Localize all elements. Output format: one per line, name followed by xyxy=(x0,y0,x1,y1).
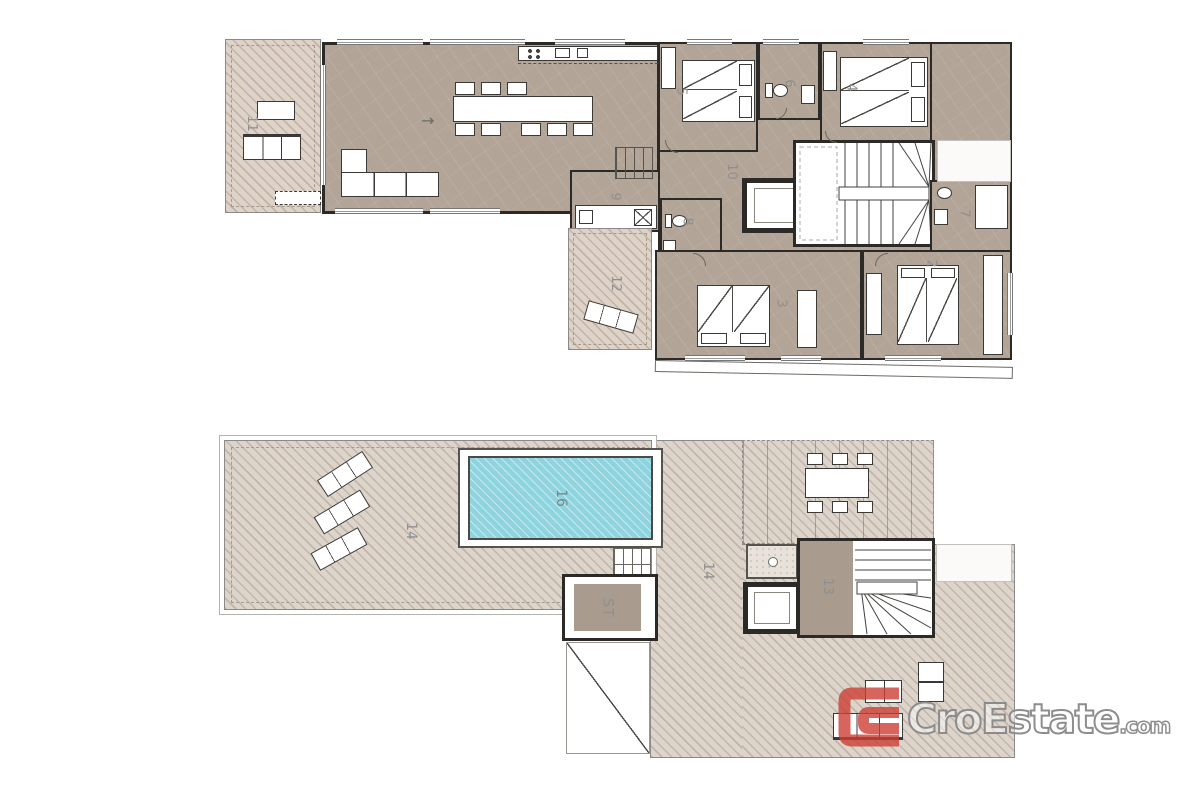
outdoor-dining-table xyxy=(805,468,869,498)
stair-room-drawing xyxy=(797,538,935,638)
floorplan-page: { "watermark": { "brand": "CroEstate", "… xyxy=(0,0,1200,800)
croestate-logo-svg xyxy=(837,686,903,748)
room-label-14-right: 14 xyxy=(701,562,715,580)
lower-roof-gable xyxy=(566,642,650,754)
pillow xyxy=(739,96,752,118)
hall-steps xyxy=(615,147,653,179)
room-label-13: 13 xyxy=(821,578,834,595)
kitchen-appliance-icon xyxy=(577,48,588,58)
window xyxy=(863,39,909,45)
terrace-11 xyxy=(225,39,321,213)
pillow xyxy=(911,97,925,122)
room-label-16: 16 xyxy=(552,489,568,507)
dining-chair xyxy=(455,123,475,136)
shower-room7 xyxy=(975,185,1008,229)
window xyxy=(430,39,525,45)
bar-stool xyxy=(521,123,541,136)
pillow xyxy=(911,62,925,87)
croestate-tld: .com xyxy=(1119,716,1170,737)
storage-st: ST xyxy=(562,574,658,641)
window xyxy=(781,355,821,361)
croestate-wordmark: CroEstate xyxy=(907,699,1119,740)
stairwell-drawing xyxy=(793,140,935,247)
wardrobe-room5 xyxy=(661,47,676,89)
sink-room6 xyxy=(801,85,815,104)
elevator-shaft-roof xyxy=(743,582,801,634)
kitchen-sink-icon xyxy=(555,48,570,58)
roof-terrace-right xyxy=(650,440,742,758)
room-label-2: 2 xyxy=(925,259,938,267)
outdoor-chair xyxy=(807,501,823,513)
pillow xyxy=(931,268,955,278)
bar-stool xyxy=(573,123,593,136)
bed-half xyxy=(734,286,769,332)
outdoor-chair xyxy=(807,453,823,465)
pillow xyxy=(740,333,766,344)
wardrobe-room2-left xyxy=(866,273,882,335)
roof-below-outline xyxy=(937,140,1011,182)
toilet-room6 xyxy=(765,83,773,98)
room-label-10: 10 xyxy=(725,163,738,180)
croestate-watermark: CroEstate .com xyxy=(835,686,1200,752)
bed-room3 xyxy=(697,285,770,347)
dining-chair xyxy=(481,82,501,95)
planter-box xyxy=(275,191,321,205)
washer-icon xyxy=(634,209,652,226)
elevator-cabin xyxy=(754,188,795,223)
room-label-14-main: 14 xyxy=(404,522,418,540)
pillow xyxy=(901,268,925,278)
window xyxy=(555,39,625,45)
terrace-11-sofa xyxy=(243,134,301,160)
bed-half xyxy=(683,61,737,90)
outdoor-chair xyxy=(832,453,848,465)
dining-chair xyxy=(507,82,527,95)
room-label-6: 6 xyxy=(783,79,796,87)
room-label-8: 8 xyxy=(681,217,694,225)
window xyxy=(885,355,941,361)
roof-below-outline-b xyxy=(936,544,1012,582)
pillow xyxy=(739,64,752,86)
stairwell-upper xyxy=(793,140,935,247)
dining-chair xyxy=(481,123,501,136)
bed-half xyxy=(698,286,733,332)
outdoor-chair xyxy=(857,453,873,465)
utility-sink-icon xyxy=(579,210,593,224)
bed-room2 xyxy=(897,265,959,345)
window xyxy=(1007,273,1013,335)
pillow xyxy=(701,333,727,344)
elevator-cabin-roof xyxy=(754,592,790,624)
outdoor-shower xyxy=(746,544,798,579)
outdoor-chair xyxy=(832,501,848,513)
room-label-5: 5 xyxy=(675,87,688,95)
balcony-slab xyxy=(655,360,1013,379)
shower-drain-icon xyxy=(768,557,778,567)
pool-16: 16 xyxy=(468,456,653,540)
room-label-9: 9 xyxy=(609,192,622,200)
bed-half xyxy=(928,278,957,342)
utility-counter xyxy=(575,205,657,229)
window xyxy=(763,39,799,45)
entry-arrow-icon: → xyxy=(421,111,434,130)
window xyxy=(685,355,745,361)
window xyxy=(337,39,423,45)
bed-room5 xyxy=(682,60,755,122)
bar-stool xyxy=(547,123,567,136)
sofa-row xyxy=(341,172,439,197)
room-label-4: 4 xyxy=(845,83,858,91)
croestate-logo-icon xyxy=(837,686,903,748)
room-label-11: 11 xyxy=(245,115,258,132)
room-label-7: 7 xyxy=(958,209,971,217)
upper-cabinets-dashed xyxy=(518,63,658,64)
bed-room4 xyxy=(840,57,928,127)
wardrobe-room4 xyxy=(823,51,837,91)
stove-icon xyxy=(526,48,543,59)
sink-room7 xyxy=(934,209,948,225)
dining-chair xyxy=(455,82,475,95)
upper-floor-plan: → xyxy=(225,35,1015,375)
wardrobe-room3 xyxy=(797,290,817,348)
dining-table xyxy=(453,96,593,122)
room-label-st: ST xyxy=(599,598,615,617)
storage-st-floor: ST xyxy=(574,584,641,631)
sofa-corner-seat xyxy=(341,149,367,173)
toilet-room8 xyxy=(665,214,672,228)
wardrobe-room2-right xyxy=(983,255,1003,355)
bed-half xyxy=(898,278,927,342)
window xyxy=(335,208,423,214)
room-label-3: 3 xyxy=(775,299,788,307)
bed-half xyxy=(841,92,909,124)
terrace-11-table xyxy=(257,101,295,120)
room-label-12: 12 xyxy=(609,275,622,292)
bed-half xyxy=(683,91,737,119)
toilet-bowl-room7 xyxy=(937,187,952,199)
stair-room-13: 13 xyxy=(797,538,935,638)
outdoor-chair xyxy=(857,501,873,513)
window xyxy=(687,39,732,45)
window xyxy=(430,208,500,214)
window xyxy=(320,65,326,185)
